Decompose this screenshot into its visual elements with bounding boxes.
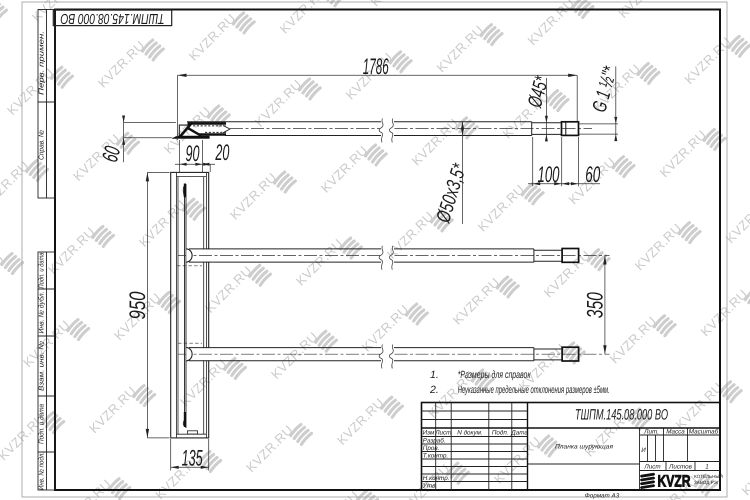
svg-text:*Размеры для справок: *Размеры для справок — [458, 369, 532, 381]
svg-text:1: 1 — [705, 464, 709, 471]
svg-text:Масштаб: Масштаб — [689, 428, 719, 435]
svg-text:Перв. примен.: Перв. примен. — [39, 31, 46, 95]
svg-text:Подп. и дата: Подп. и дата — [38, 252, 46, 288]
svg-text:100: 100 — [538, 162, 560, 187]
svg-text:2.: 2. — [429, 384, 439, 396]
svg-text:1786: 1786 — [363, 54, 389, 79]
svg-text:60: 60 — [585, 162, 600, 187]
svg-text:N докум.: N докум. — [457, 430, 482, 437]
svg-text:Дата: Дата — [510, 430, 528, 437]
svg-text:Изм: Изм — [423, 430, 435, 437]
svg-text:Справ. №: Справ. № — [39, 130, 46, 160]
svg-text:Пров.: Пров. — [423, 445, 440, 452]
svg-text:950: 950 — [125, 291, 150, 319]
svg-text:350: 350 — [583, 292, 608, 318]
svg-text:20: 20 — [215, 140, 230, 165]
svg-text:Разраб.: Разраб. — [423, 437, 446, 444]
svg-text:Листов: Листов — [668, 464, 693, 471]
svg-text:ТШПМ.145.08.000 ВО: ТШПМ.145.08.000 ВО — [575, 407, 668, 424]
svg-text:Формат А3: Формат А3 — [585, 493, 620, 500]
svg-text:Лист: Лист — [643, 464, 660, 471]
svg-text:Лит.: Лит. — [643, 428, 659, 435]
svg-text:Н.контр.: Н.контр. — [423, 475, 450, 482]
svg-text:Подп.: Подп. — [492, 430, 509, 437]
svg-text:90: 90 — [186, 141, 200, 166]
svg-text:Т.контр.: Т.контр. — [423, 452, 448, 459]
svg-text:1.: 1. — [430, 369, 439, 381]
svg-text:Утв.: Утв. — [422, 482, 437, 489]
svg-text:Лист: Лист — [434, 430, 451, 437]
svg-text:Инв. № подл.: Инв. № подл. — [38, 452, 46, 490]
svg-text:И: И — [641, 447, 646, 454]
svg-text:KVZR: KVZR — [658, 472, 691, 490]
svg-text:Неуказанные предельные отклоне: Неуказанные предельные отклонения размер… — [458, 384, 610, 396]
svg-text:Взам. инв. №: Взам. инв. № — [39, 341, 46, 391]
svg-text:ЗАВОД РЭП: ЗАВОД РЭП — [694, 480, 720, 485]
svg-text:Подп. и дата: Подп. и дата — [38, 404, 46, 444]
svg-text:Инв. № дубл.: Инв. № дубл. — [38, 291, 46, 333]
svg-text:135: 135 — [182, 445, 203, 470]
svg-text:ТШПМ.145.08.000 ВО: ТШПМ.145.08.000 ВО — [61, 10, 165, 26]
svg-text:КОТЕЛЬНЫЙ: КОТЕЛЬНЫЙ — [694, 473, 723, 479]
svg-text:Масса: Масса — [666, 428, 685, 435]
svg-text:Планка шурующая: Планка шурующая — [555, 444, 614, 451]
